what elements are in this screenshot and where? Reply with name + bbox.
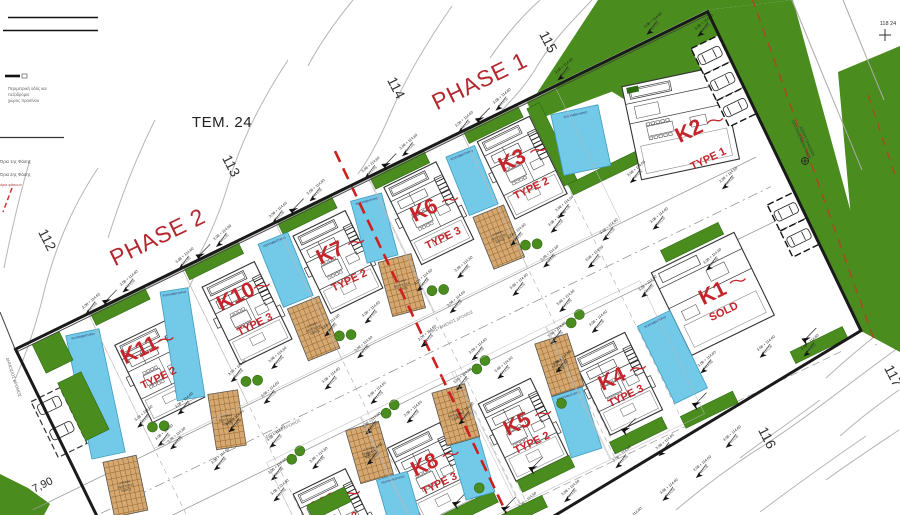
svg-text:118 24: 118 24 [880, 21, 896, 27]
svg-text:Όρια 2ης Φάσης: Όρια 2ης Φάσης [0, 172, 31, 177]
svg-text:ΤΕΜ. 24: ΤΕΜ. 24 [192, 114, 252, 131]
svg-text:όρια φάσεων: όρια φάσεων [0, 183, 22, 187]
svg-text:χώρος πρασίνου: χώρος πρασίνου [8, 98, 40, 103]
svg-text:Περιμετρική οδός και: Περιμετρική οδός και [8, 86, 47, 91]
svg-text:πεζοδρόμιο: πεζοδρόμιο [8, 92, 30, 97]
svg-text:Όρια 1ης Φάσης: Όρια 1ης Φάσης [0, 159, 31, 164]
